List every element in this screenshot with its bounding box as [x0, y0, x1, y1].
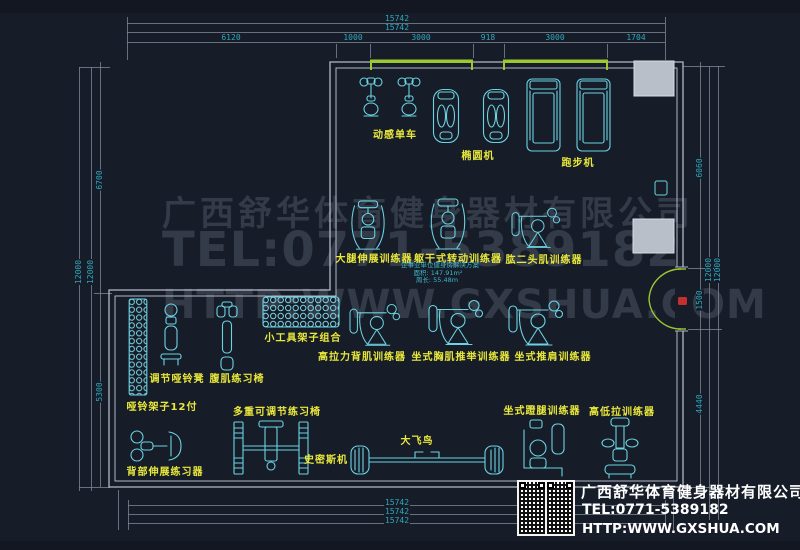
cad-floorplan-canvas: 广西舒华体育健身器材有限公司 TEL:0771-5389182 HTTP:WWW… — [0, 0, 800, 550]
label-adj-dumbbell-bench: 调节哑铃凳 — [150, 370, 205, 385]
dim-top-seg-6: 1704 — [625, 34, 646, 42]
dim-right-seg-1: 6060 — [696, 157, 704, 178]
dim-tick — [128, 500, 129, 530]
dim-line — [100, 62, 101, 487]
window-strips — [370, 60, 608, 71]
label-back-extension: 背部伸展练习器 — [127, 463, 204, 478]
dim-right-total-2: 12000 — [714, 257, 722, 283]
dim-tick — [336, 44, 337, 58]
bottom-letterbox-band — [0, 541, 800, 550]
label-hi-lo-pulley: 高低拉训练器 — [589, 403, 655, 418]
dim-left-seg-2: 5300 — [96, 381, 104, 402]
back-extension-machine — [131, 431, 181, 461]
top-letterbox-band — [0, 0, 800, 13]
dim-ext — [118, 490, 119, 530]
leg-press-machine — [524, 420, 564, 476]
dim-tick — [94, 293, 112, 294]
dim-tick — [665, 17, 666, 60]
plan-note-title: 企事业单位健身房解决方案 — [401, 262, 479, 269]
dim-tick — [688, 329, 722, 330]
elliptical-2 — [484, 90, 509, 143]
label-biceps: 肱二头肌训练器 — [506, 251, 583, 266]
smith-machine — [234, 421, 308, 474]
label-tool-rack: 小工具架子组合 — [265, 329, 342, 344]
dim-bottom-2: 15742 — [384, 508, 410, 516]
dumbbell-rack — [129, 299, 147, 395]
dim-bottom-1: 15742 — [384, 499, 410, 507]
dim-top-seg-2: 1000 — [342, 34, 363, 42]
label-smith-machine: 史密斯机 — [304, 451, 348, 466]
qr-code-2 — [547, 482, 573, 534]
dim-left-seg-1: 6700 — [96, 169, 104, 190]
label-multi-adj-bench: 多重可调节练习椅 — [233, 403, 321, 418]
dim-tick — [127, 17, 128, 60]
dim-tick — [504, 44, 505, 58]
dim-line — [718, 66, 719, 520]
dim-left-total-2: 12000 — [87, 259, 95, 285]
dim-tick — [370, 44, 371, 58]
dim-top-total-1: 15742 — [384, 15, 410, 23]
dim-right-seg-2: 1500 — [696, 289, 704, 310]
dim-top-seg-4: 918 — [480, 34, 496, 42]
column-top-right — [634, 61, 674, 96]
cable-crossover-machine — [351, 446, 503, 474]
treadmill-2 — [577, 79, 610, 151]
dim-line — [127, 42, 665, 43]
label-dumbbell-rack: 哑铃架子12付 — [127, 398, 198, 413]
dim-tick — [473, 44, 474, 58]
label-spin-bike: 动感单车 — [373, 126, 417, 141]
label-lat-pulldown: 高拉力背肌训练器 — [318, 348, 406, 363]
dim-top-seg-1: 6120 — [220, 34, 241, 42]
elliptical-1 — [434, 90, 459, 143]
dim-top-seg-5: 3000 — [544, 34, 565, 42]
plan-note-perimeter: 周长: 55.48m — [416, 277, 458, 284]
label-treadmill: 跑步机 — [562, 154, 595, 169]
info-tel: TEL:0771-5389182 — [582, 502, 729, 518]
dim-left-total-1: 12000 — [75, 259, 83, 285]
dim-right-seg-3: 4440 — [696, 393, 704, 414]
hi-lo-pulley-machine — [602, 418, 638, 478]
info-url: HTTP:WWW.GXSHUA.COM — [582, 521, 780, 537]
watermark-url: HTTP:WWW.GXSHUA.COM — [162, 282, 767, 328]
dim-top-seg-3: 3000 — [410, 34, 431, 42]
label-elliptical: 椭圆机 — [462, 147, 495, 162]
dim-line — [700, 62, 701, 487]
spin-bike-2 — [398, 78, 420, 116]
info-company: 广西舒华体育健身器材有限公司 — [581, 481, 800, 502]
treadmill-1 — [527, 79, 560, 151]
dim-right-total-1: 12000 — [705, 257, 713, 283]
qr-panel — [517, 480, 575, 536]
dim-ext — [683, 66, 725, 67]
dim-tick — [607, 44, 608, 58]
label-ab-bench: 腹肌练习椅 — [210, 370, 265, 385]
label-leg-press: 坐式蹬腿训练器 — [504, 402, 581, 417]
label-chest-press: 坐式胸肌推举训练器 — [412, 348, 511, 363]
dim-bottom-3: 15742 — [384, 517, 410, 525]
dim-line — [709, 66, 710, 520]
dim-ext — [79, 487, 110, 488]
dim-top-total-2: 15742 — [384, 24, 410, 32]
qr-code-1 — [519, 482, 545, 534]
dim-line — [127, 32, 665, 33]
dim-ext — [79, 67, 110, 68]
label-shoulder-press: 坐式推肩训练器 — [515, 348, 592, 363]
label-cable-crossover: 大飞鸟 — [401, 432, 434, 447]
spin-bike-1 — [360, 78, 382, 116]
